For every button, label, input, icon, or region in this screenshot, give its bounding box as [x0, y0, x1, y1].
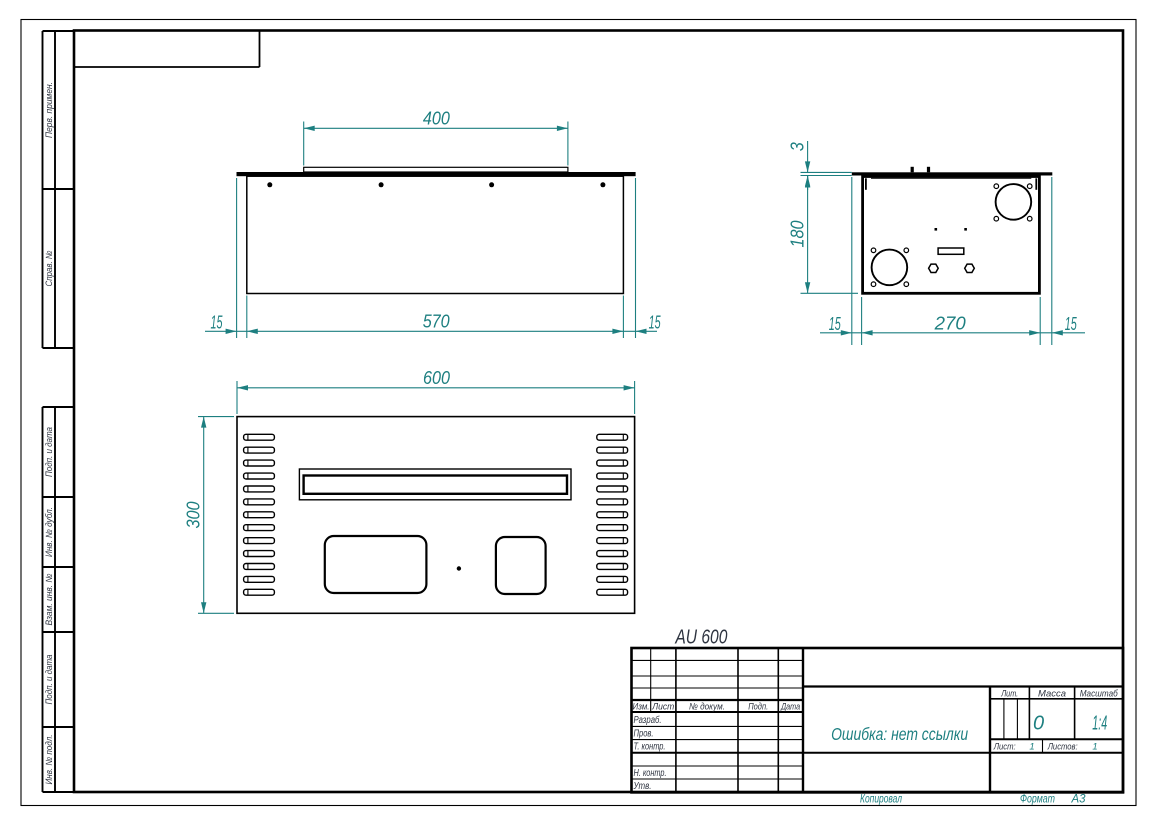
svg-text:Ошибка: нет ссылки: Ошибка: нет ссылки [831, 724, 968, 744]
svg-text:Подп. и дата: Подп. и дата [44, 655, 54, 705]
svg-text:0: 0 [1033, 713, 1044, 735]
svg-text:300: 300 [184, 502, 204, 529]
svg-text:Масса: Масса [1038, 688, 1066, 699]
svg-text:Лит.: Лит. [1000, 688, 1018, 699]
svg-text:3: 3 [788, 142, 808, 151]
svg-text:Перв. примен.: Перв. примен. [44, 82, 54, 138]
svg-text:1:4: 1:4 [1092, 713, 1107, 735]
svg-text:Листов:: Листов: [1047, 742, 1078, 753]
svg-text:Дата: Дата [780, 702, 800, 713]
svg-text:15: 15 [649, 312, 662, 332]
svg-text:Инв. № дубл.: Инв. № дубл. [44, 507, 54, 557]
svg-text:Разраб.: Разраб. [634, 714, 662, 726]
svg-text:Взам. инв. №: Взам. инв. № [44, 573, 54, 625]
svg-text:15: 15 [1065, 314, 1078, 334]
svg-text:Н. контр.: Н. контр. [634, 768, 667, 779]
svg-text:600: 600 [423, 368, 450, 388]
svg-text:15: 15 [211, 312, 224, 332]
svg-text:Т. контр.: Т. контр. [634, 742, 666, 753]
svg-text:15: 15 [829, 314, 842, 334]
svg-text:180: 180 [788, 221, 808, 248]
svg-text:1: 1 [1092, 742, 1097, 753]
svg-text:Масштаб: Масштаб [1080, 688, 1119, 699]
svg-text:Пров.: Пров. [634, 728, 654, 739]
svg-text:1: 1 [1029, 742, 1034, 753]
svg-text:Справ. №: Справ. № [44, 250, 54, 286]
svg-text:400: 400 [423, 109, 450, 129]
svg-text:№ докум.: № докум. [689, 702, 725, 713]
svg-text:Лист: Лист [651, 702, 674, 713]
svg-text:Подп. и дата: Подп. и дата [44, 427, 54, 477]
svg-text:Утв.: Утв. [633, 781, 652, 792]
svg-text:Изм.: Изм. [633, 702, 650, 713]
svg-text:Подп.: Подп. [748, 702, 768, 713]
svg-text:AU 600: AU 600 [675, 627, 728, 649]
svg-text:Формат: Формат [1020, 794, 1055, 806]
svg-text:570: 570 [423, 311, 450, 331]
svg-text:А3: А3 [1071, 794, 1087, 806]
svg-text:Копировал: Копировал [860, 794, 902, 806]
svg-text:Лист:: Лист: [993, 742, 1016, 753]
svg-text:Инв. № подл.: Инв. № подл. [44, 735, 54, 785]
svg-text:270: 270 [934, 313, 966, 333]
